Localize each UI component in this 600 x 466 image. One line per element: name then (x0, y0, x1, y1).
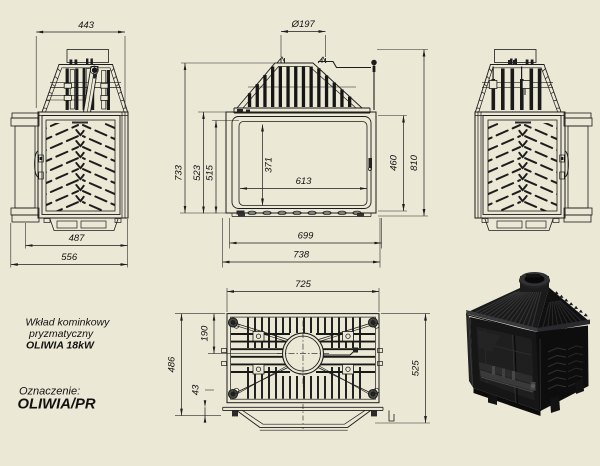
svg-text:OLIWIA 18kW: OLIWIA 18kW (26, 340, 95, 352)
svg-text:Wkład kominkowy: Wkład kominkowy (25, 317, 110, 329)
svg-text:43: 43 (191, 384, 202, 395)
svg-text:371: 371 (264, 157, 275, 173)
svg-text:556: 556 (61, 252, 78, 263)
svg-text:OLIWIA/PR: OLIWIA/PR (18, 397, 96, 413)
svg-text:738: 738 (293, 250, 310, 261)
svg-text:443: 443 (78, 20, 95, 31)
svg-text:523: 523 (192, 164, 203, 181)
svg-text:460: 460 (389, 154, 400, 171)
svg-text:699: 699 (298, 231, 315, 242)
svg-text:733: 733 (174, 164, 185, 181)
svg-text:487: 487 (69, 233, 86, 244)
svg-text:pryzmatyczny: pryzmatyczny (28, 328, 94, 340)
svg-text:525: 525 (411, 360, 422, 377)
svg-text:190: 190 (200, 325, 211, 342)
svg-text:515: 515 (205, 164, 216, 181)
svg-text:810: 810 (409, 154, 420, 171)
svg-text:486: 486 (167, 356, 178, 373)
svg-text:725: 725 (295, 279, 312, 290)
svg-text:Ø197: Ø197 (291, 19, 316, 30)
svg-text:613: 613 (296, 176, 313, 187)
